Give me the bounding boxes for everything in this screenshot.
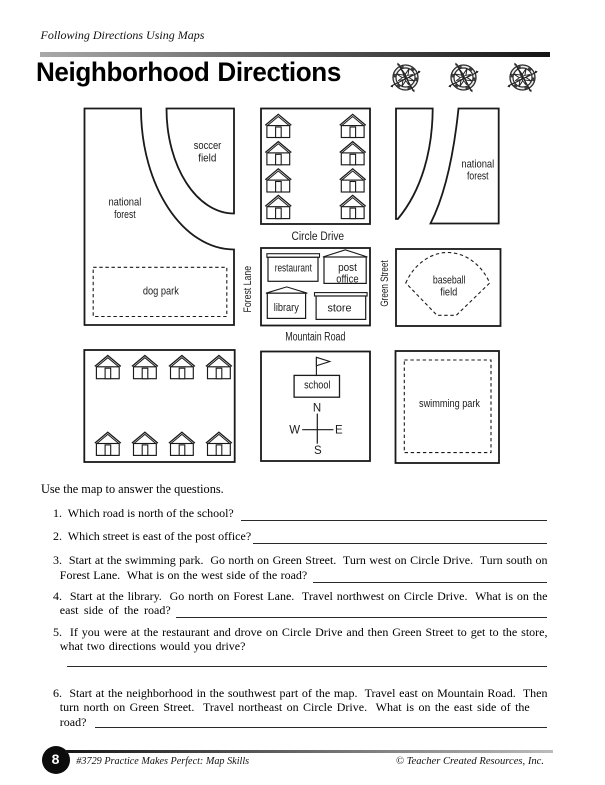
svg-text:library: library <box>274 302 299 314</box>
svg-text:national: national <box>108 197 141 209</box>
svg-text:Mountain Road: Mountain Road <box>285 332 345 344</box>
svg-text:field: field <box>198 153 216 165</box>
svg-text:baseball: baseball <box>433 274 466 286</box>
svg-text:Forest Lane: Forest Lane <box>242 266 254 313</box>
svg-text:post: post <box>338 262 358 274</box>
svg-text:national: national <box>461 158 494 170</box>
svg-text:swimming park: swimming park <box>419 398 480 410</box>
svg-text:field: field <box>440 286 457 298</box>
svg-text:W: W <box>289 425 300 437</box>
svg-text:forest: forest <box>467 171 489 183</box>
svg-text:store: store <box>327 303 351 315</box>
svg-text:S: S <box>314 445 322 457</box>
svg-text:school: school <box>304 380 330 392</box>
svg-text:forest: forest <box>114 209 136 221</box>
svg-text:Circle Drive: Circle Drive <box>292 231 345 243</box>
svg-text:dog park: dog park <box>143 285 179 297</box>
svg-text:N: N <box>313 402 321 414</box>
svg-text:soccer: soccer <box>194 140 222 152</box>
svg-text:restaurant: restaurant <box>275 262 313 274</box>
svg-text:Green Street: Green Street <box>379 260 391 307</box>
svg-text:office: office <box>336 273 358 285</box>
svg-text:E: E <box>335 425 343 437</box>
